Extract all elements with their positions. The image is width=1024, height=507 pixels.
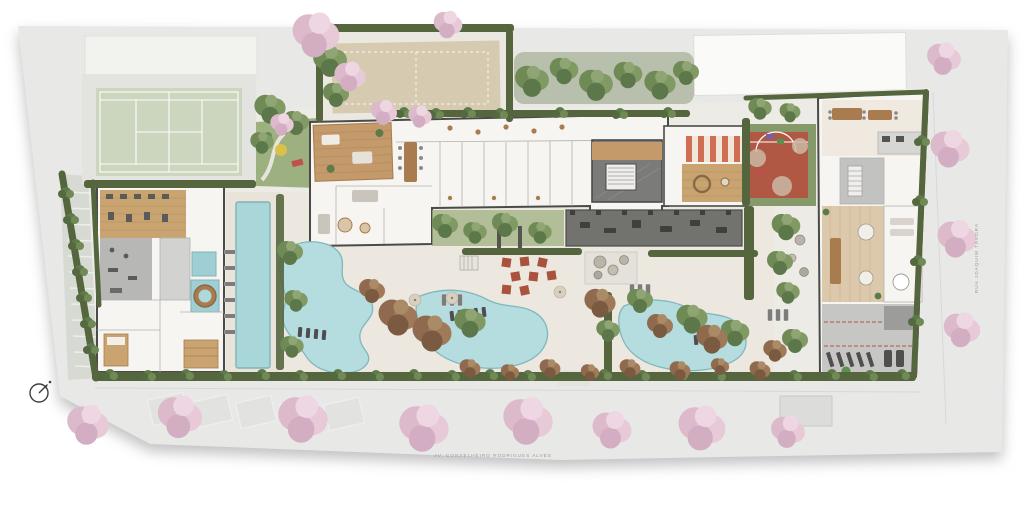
- massage-room: [104, 334, 128, 366]
- lap-pool: [236, 202, 270, 368]
- sauna: [184, 340, 218, 368]
- play-equipment: [766, 134, 774, 139]
- site-plan-rendering: AV. CONSELHEIRO RODRIGUES ALVES RUA JOAQ…: [0, 0, 1024, 507]
- kids-zone: [664, 124, 816, 206]
- elevator-core: [160, 238, 190, 300]
- lobby: [592, 140, 662, 202]
- zen-garden: [585, 252, 637, 284]
- spa-pools: [191, 252, 219, 312]
- basketball-half-court: [744, 124, 816, 206]
- stairs: [460, 256, 478, 270]
- tennis-court: [82, 74, 256, 184]
- sofa: [890, 218, 914, 225]
- sofa: [352, 190, 378, 202]
- amenities-building-right: [818, 92, 928, 378]
- neighbor-building: [85, 36, 257, 76]
- dining-table: [832, 108, 862, 120]
- party-rooms: [822, 100, 924, 156]
- lap-pool-area: [225, 192, 280, 376]
- north-arrow-icon: [30, 381, 51, 402]
- neighbor-building: [694, 33, 907, 96]
- street-name-right: RUA JOAQUIM TÁVORA: [973, 223, 980, 293]
- utility-room: [884, 306, 916, 330]
- functional-training-area: [100, 238, 152, 300]
- kids-playroom-deck: [686, 136, 744, 162]
- play-equipment: [275, 144, 287, 156]
- wellness-building: [97, 186, 224, 372]
- stair-core: [840, 158, 884, 204]
- site-plan-svg: AV. CONSELHEIRO RODRIGUES ALVES RUA JOAQ…: [0, 0, 1024, 507]
- lounge-deck: [313, 123, 393, 182]
- bike-storage: [822, 304, 918, 376]
- coworking-lounge: [822, 206, 884, 302]
- street-name-bottom: AV. CONSELHEIRO RODRIGUES ALVES: [434, 453, 552, 459]
- long-table: [830, 238, 841, 284]
- round-table: [858, 224, 874, 240]
- playground: [682, 164, 742, 202]
- round-table: [338, 218, 352, 232]
- outdoor-fitness-area: [566, 210, 742, 246]
- gym: [100, 190, 186, 238]
